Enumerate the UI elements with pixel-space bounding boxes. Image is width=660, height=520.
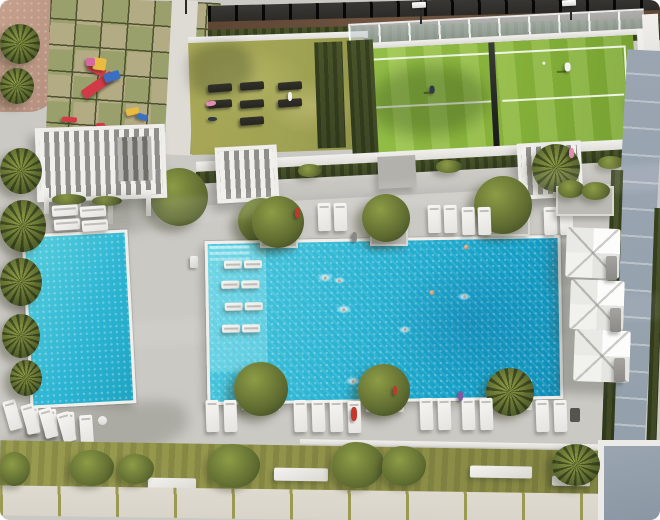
pool-edge-tree (252, 196, 304, 248)
planter-box (470, 465, 532, 478)
sun-lounger (461, 398, 475, 430)
sun-lounger (2, 399, 23, 431)
person-walking (295, 208, 300, 218)
playground-bench (62, 116, 77, 122)
person-walking (393, 386, 397, 395)
pool-edge-tree (362, 194, 410, 242)
planter-box (274, 468, 328, 482)
swimmer (429, 290, 434, 295)
gym-mat (240, 99, 264, 109)
palm-tree (0, 200, 46, 252)
in-water-lounger (224, 260, 242, 268)
sun-lounger (54, 218, 81, 231)
shaded-lounger (606, 256, 617, 280)
sun-lounger (223, 400, 237, 432)
shaded-lounger (610, 308, 621, 332)
playground-arch (86, 58, 95, 66)
deep-end-tint (388, 254, 550, 391)
sun-lounger (80, 205, 107, 218)
in-water-lounger (242, 324, 260, 332)
side-table (98, 416, 107, 425)
floodlight-lamp (562, 0, 576, 6)
sun-lounger (329, 400, 343, 432)
deck-chair (190, 256, 198, 268)
in-water-lounger (222, 325, 240, 333)
palm-tree (10, 360, 42, 396)
sun-lounger (318, 203, 332, 231)
palm-tree (0, 68, 34, 104)
gym-mat (208, 83, 232, 93)
person-walking (458, 391, 463, 401)
palm-tree (0, 24, 40, 64)
floodlight-lamp (412, 2, 426, 9)
sun-lounger (79, 415, 94, 444)
sun-lounger (437, 398, 451, 430)
sun-lounger (479, 398, 493, 430)
padel-player (564, 62, 570, 71)
sun-lounger (553, 400, 567, 432)
in-water-lounger (221, 281, 239, 289)
swimmer (464, 245, 469, 250)
lower-ramp (598, 440, 660, 520)
floodlight-pole (185, 0, 187, 14)
pergola-opening (117, 136, 153, 181)
swimmer (336, 305, 352, 314)
swimmer (333, 277, 345, 284)
person-exercising (288, 92, 292, 101)
sun-lounger (478, 207, 492, 235)
side-table-dark (570, 408, 580, 422)
in-water-lounger (244, 260, 262, 268)
sun-lounger (428, 205, 442, 233)
sun-lounger (462, 207, 476, 235)
lawn-side-hedge (314, 42, 346, 149)
sun-lounger (52, 204, 79, 217)
sun-lounger (535, 400, 549, 432)
pool-edge-tree (234, 362, 288, 416)
padel-ball (542, 62, 545, 65)
pool-edge-tree (358, 364, 410, 416)
person-sunbathing (351, 407, 357, 421)
sun-lounger (293, 400, 307, 432)
person-walking (569, 148, 574, 158)
sun-lounger (205, 400, 219, 432)
aerial-render (0, 0, 660, 520)
padel-player (429, 85, 434, 93)
in-water-lounger (241, 280, 259, 288)
gym-mat (240, 81, 264, 91)
person-exercising (208, 117, 217, 121)
strip-palm (552, 444, 600, 486)
palm-tree (2, 314, 40, 358)
sun-lounger (311, 400, 325, 432)
swimmer (317, 273, 333, 282)
shaded-lounger (614, 358, 625, 382)
sun-lounger (82, 219, 109, 232)
gym-mat (278, 81, 302, 91)
in-water-lounger (245, 302, 263, 310)
gym-mat (240, 116, 264, 126)
sun-lounger (419, 398, 433, 430)
in-water-lounger (225, 302, 243, 310)
sun-lounger (444, 205, 458, 233)
pool-edge-palm (486, 368, 534, 416)
palm-tree (0, 148, 42, 194)
person-walking (352, 232, 357, 242)
palm-tree (0, 258, 42, 306)
sun-lounger (334, 203, 348, 231)
